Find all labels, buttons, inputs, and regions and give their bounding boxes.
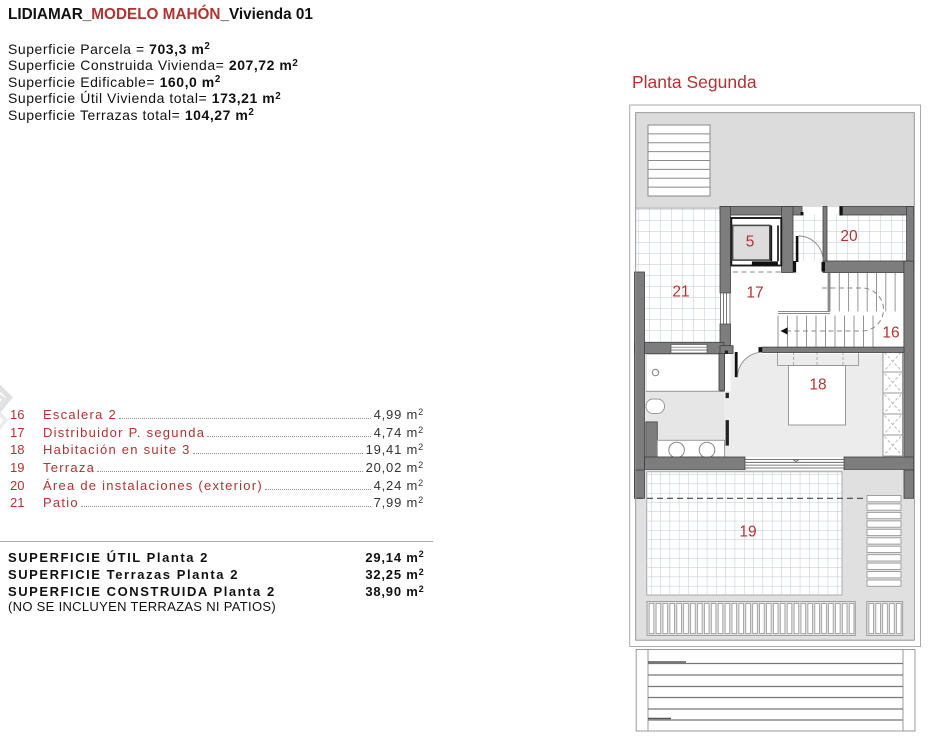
svg-text:18: 18 — [809, 377, 826, 394]
svg-text:5: 5 — [746, 234, 755, 251]
svg-text:21: 21 — [672, 284, 689, 301]
svg-text:20: 20 — [840, 228, 858, 245]
svg-text:16: 16 — [882, 325, 899, 342]
svg-text:19: 19 — [739, 524, 756, 541]
svg-text:17: 17 — [746, 285, 763, 302]
